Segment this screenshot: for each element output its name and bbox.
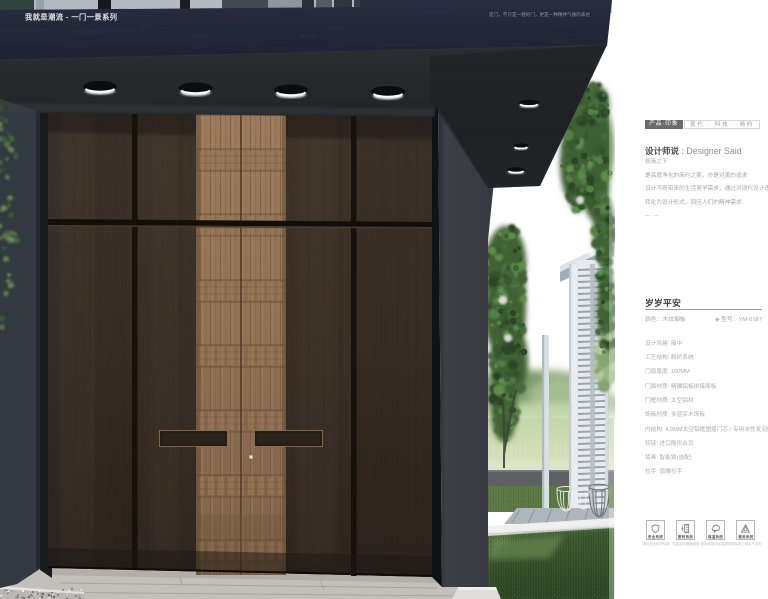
svg-text:是门，不只是一樘好门，更是一种精神气质的表达: 是门，不只是一樘好门，更是一种精神气质的表达 bbox=[489, 11, 590, 18]
svg-text:我就是潮流 - 一门一景系列: 我就是潮流 - 一门一景系列 bbox=[25, 13, 117, 22]
